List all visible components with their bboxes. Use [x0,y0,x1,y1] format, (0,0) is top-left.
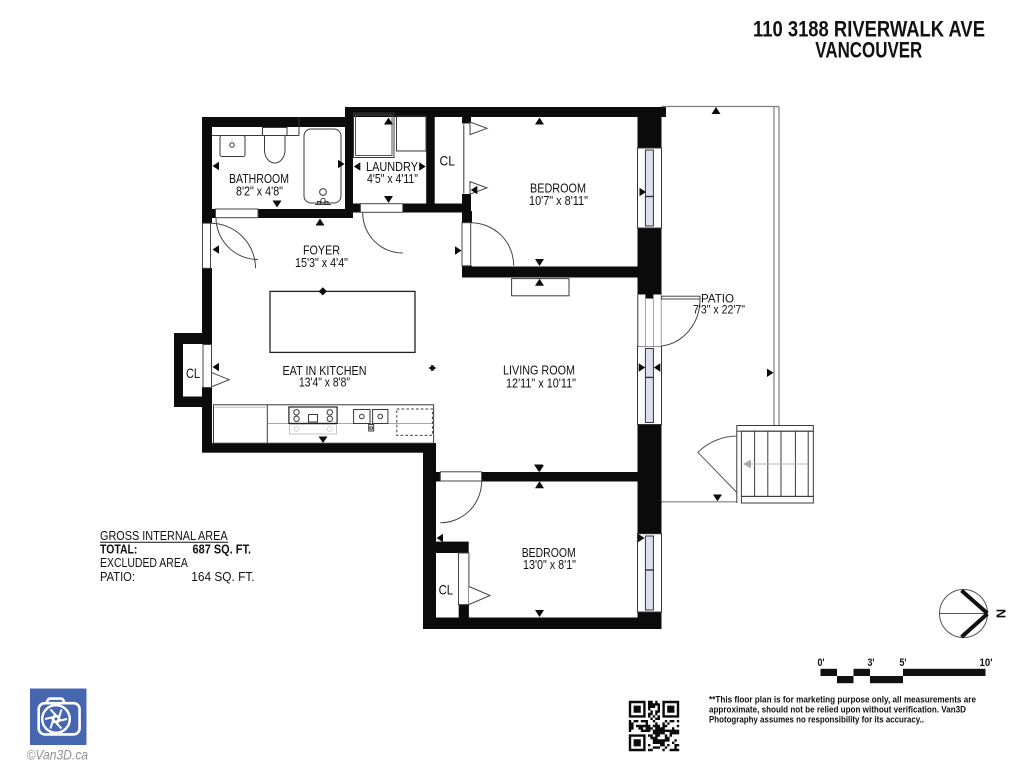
svg-text:VANCOUVER: VANCOUVER [815,38,922,63]
svg-text:5': 5' [900,657,907,669]
svg-text:0': 0' [818,657,825,669]
svg-text:EXCLUDED AREA: EXCLUDED AREA [100,555,188,570]
svg-text:PATIO:: PATIO: [100,569,135,584]
svg-text:164 SQ. FT.: 164 SQ. FT. [191,569,254,584]
svg-text:N: N [994,609,1009,618]
svg-text:4'5" x 4'11": 4'5" x 4'11" [367,171,418,186]
svg-text:CL: CL [439,582,454,598]
svg-text:13'4" x 8'8": 13'4" x 8'8" [299,375,350,390]
svg-text:CL: CL [440,153,456,169]
svg-text:3': 3' [868,657,875,669]
svg-text:Photography assumes no respons: Photography assumes no responsibility fo… [709,714,924,725]
svg-text:©Van3D.ca: ©Van3D.ca [27,748,89,763]
svg-text:10': 10' [980,657,993,669]
svg-text:10'7" x 8'11": 10'7" x 8'11" [529,193,588,208]
svg-text:13'0" x 8'1": 13'0" x 8'1" [523,557,576,572]
svg-text:8'2" x 4'8": 8'2" x 4'8" [236,184,283,199]
svg-text:CL: CL [186,365,200,381]
svg-text:7'3" x 22'7": 7'3" x 22'7" [693,303,745,317]
svg-text:15'3" x 4'4": 15'3" x 4'4" [295,255,348,270]
svg-text:687 SQ. FT.: 687 SQ. FT. [193,542,252,557]
svg-text:12'11" x 10'11": 12'11" x 10'11" [506,376,576,391]
